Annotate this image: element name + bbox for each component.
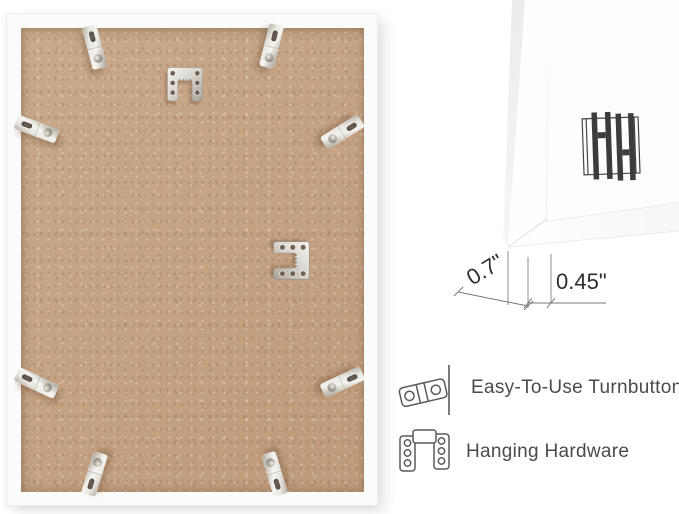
feature-row-turnbuttons: Easy-To-Use Turnbuttons — [396, 358, 679, 418]
dimension-label-face-width: 0.45" — [556, 269, 607, 294]
frame-corner-detail: 0.7" 0.45" — [430, 0, 679, 320]
feature-row-hanging-hardware: Hanging Hardware — [397, 424, 629, 480]
sawtooth-hanger-top — [163, 64, 207, 108]
dimension-label-depth: 0.7" — [462, 249, 508, 290]
product-image: 0.7" 0.45" Easy-To-Use Turnbuttons — [0, 0, 679, 514]
photo-frame-back — [7, 14, 377, 505]
mat-surface — [546, 0, 679, 222]
turnbutton-icon — [396, 359, 458, 417]
feature-label: Hanging Hardware — [466, 441, 629, 463]
sawtooth-hanger-middle — [266, 237, 313, 284]
hanging-hardware-icon — [397, 426, 453, 478]
feature-label: Easy-To-Use Turnbuttons — [471, 377, 679, 399]
